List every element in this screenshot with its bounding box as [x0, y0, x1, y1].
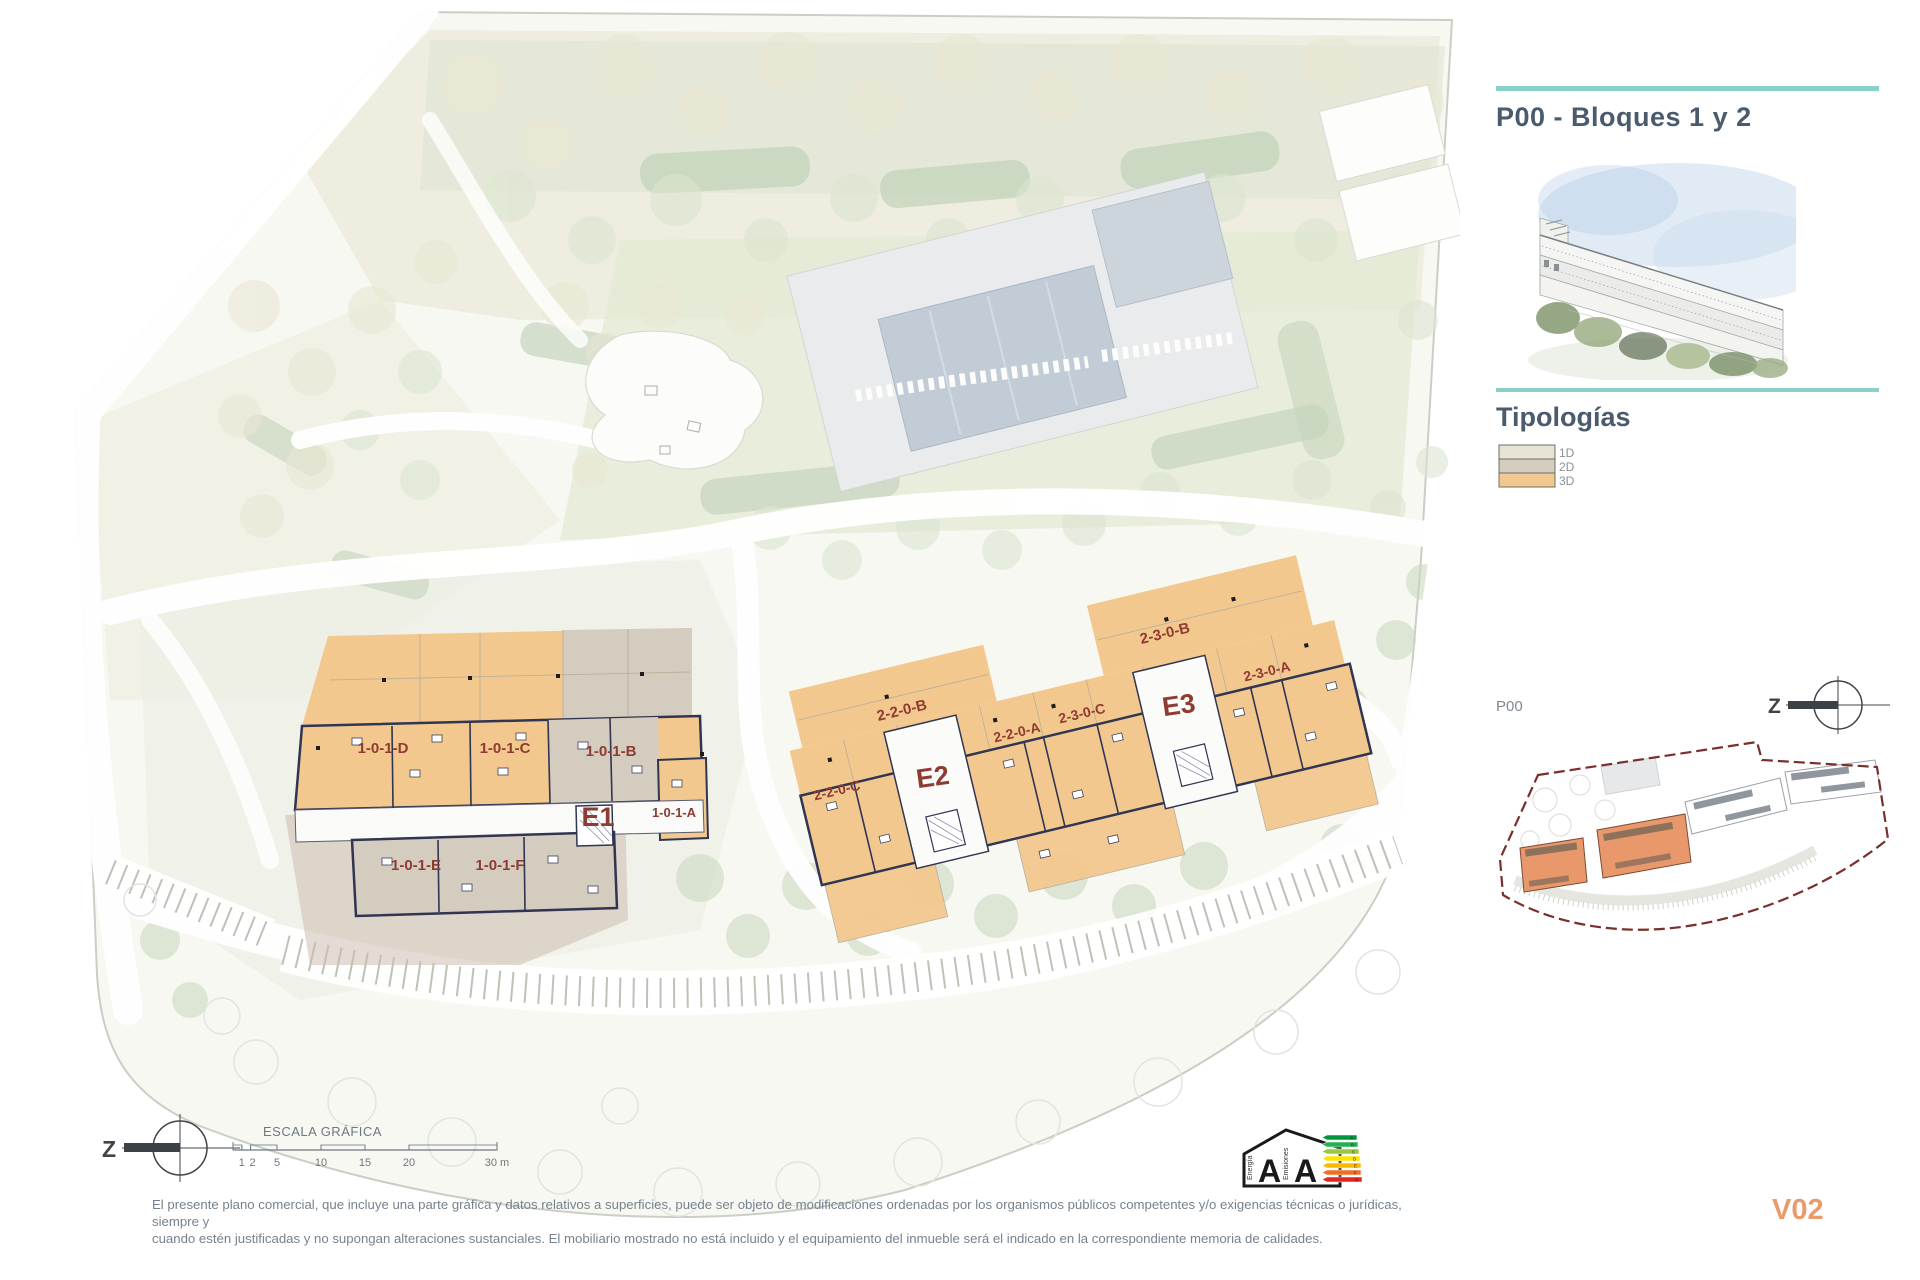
legend-swatch-3d [1499, 473, 1555, 487]
svg-text:A: A [1350, 1136, 1353, 1141]
svg-text:F: F [1354, 1171, 1357, 1176]
energy-rating-icon: Energía A Emisiones A A B C D E F G [1236, 1124, 1362, 1192]
keyplan-floor-label: P00 [1496, 698, 1523, 715]
scale-tick: 2 [250, 1157, 256, 1169]
svg-text:G: G [1355, 1178, 1359, 1183]
scale-tick: 10 [315, 1157, 327, 1169]
north-compass-right: Z [1766, 676, 1890, 738]
energy-right-caption: Emisiones [1283, 1147, 1290, 1180]
keyplan-building-2-highlight [1597, 814, 1691, 878]
unit-label: 1-0-1-F [475, 857, 524, 874]
scale-tick: 15 [359, 1157, 371, 1169]
keyplan-building-1-highlight [1520, 838, 1587, 892]
scale-tick: 1 [239, 1157, 245, 1169]
unit-label: 1-0-1-E [391, 857, 441, 874]
site-plan: 1-0-1-D 1-0-1-C 1-0-1-B 1-0-1-A 1-0-1-E … [0, 0, 1460, 1280]
unit-label: 1-0-1-A [652, 805, 697, 820]
keyplan-building-3 [1685, 778, 1787, 834]
legend-swatch-1d [1499, 445, 1555, 459]
svg-text:B: B [1351, 1143, 1354, 1148]
north-compass-bottom: Z [100, 1112, 240, 1188]
disclaimer-line-1: El presente plano comercial, que incluye… [152, 1196, 1432, 1230]
legend-label-1d: 1D [1559, 446, 1575, 460]
keyplan-pool [1601, 757, 1660, 794]
key-plan [1485, 730, 1897, 942]
unit-label: 1-0-1-D [358, 740, 409, 757]
scale-bar-title: ESCALA GRÁFICA [263, 1124, 382, 1139]
unit-label: 1-0-1-B [586, 743, 637, 760]
legend-swatch-2d [1499, 459, 1555, 473]
scale-tick: 20 [403, 1157, 415, 1169]
energy-letter-2: A [1294, 1153, 1317, 1189]
accent-rule-mid [1496, 388, 1879, 392]
energy-left-caption: Energía [1247, 1155, 1254, 1180]
svg-text:E: E [1354, 1164, 1357, 1169]
disclaimer-text: El presente plano comercial, que incluye… [152, 1196, 1432, 1247]
legend-label-3d: 3D [1559, 474, 1575, 488]
unit-label: 1-0-1-C [480, 740, 531, 757]
core-label: E2 [914, 760, 951, 794]
compass-needle [124, 1143, 180, 1152]
plan-sheet: 1-0-1-D 1-0-1-C 1-0-1-B 1-0-1-A 1-0-1-E … [0, 0, 1920, 1280]
typology-legend: 1D 2D 3D [1498, 444, 1648, 494]
core-label: E1 [581, 802, 614, 832]
scale-tick: 30 m [485, 1157, 509, 1169]
compass-label: Z [1768, 695, 1781, 718]
scale-tick: 5 [274, 1157, 280, 1169]
compass-needle [1788, 701, 1838, 709]
scale-bar: ESCALA GRÁFICA 1 2 5 10 15 20 30 m [225, 1118, 525, 1176]
compass-label: Z [102, 1136, 116, 1162]
building-render-image [1528, 160, 1796, 380]
disclaimer-line-2: cuando estén justificadas y no supongan … [152, 1230, 1432, 1247]
typologies-heading: Tipologías [1496, 402, 1631, 433]
version-label: V02 [1772, 1194, 1824, 1227]
accent-rule-top [1496, 86, 1879, 91]
legend-label-2d: 2D [1559, 460, 1575, 474]
page-title: P00 - Bloques 1 y 2 [1496, 102, 1752, 133]
energy-letter-1: A [1258, 1153, 1281, 1189]
core-label: E3 [1160, 688, 1197, 722]
